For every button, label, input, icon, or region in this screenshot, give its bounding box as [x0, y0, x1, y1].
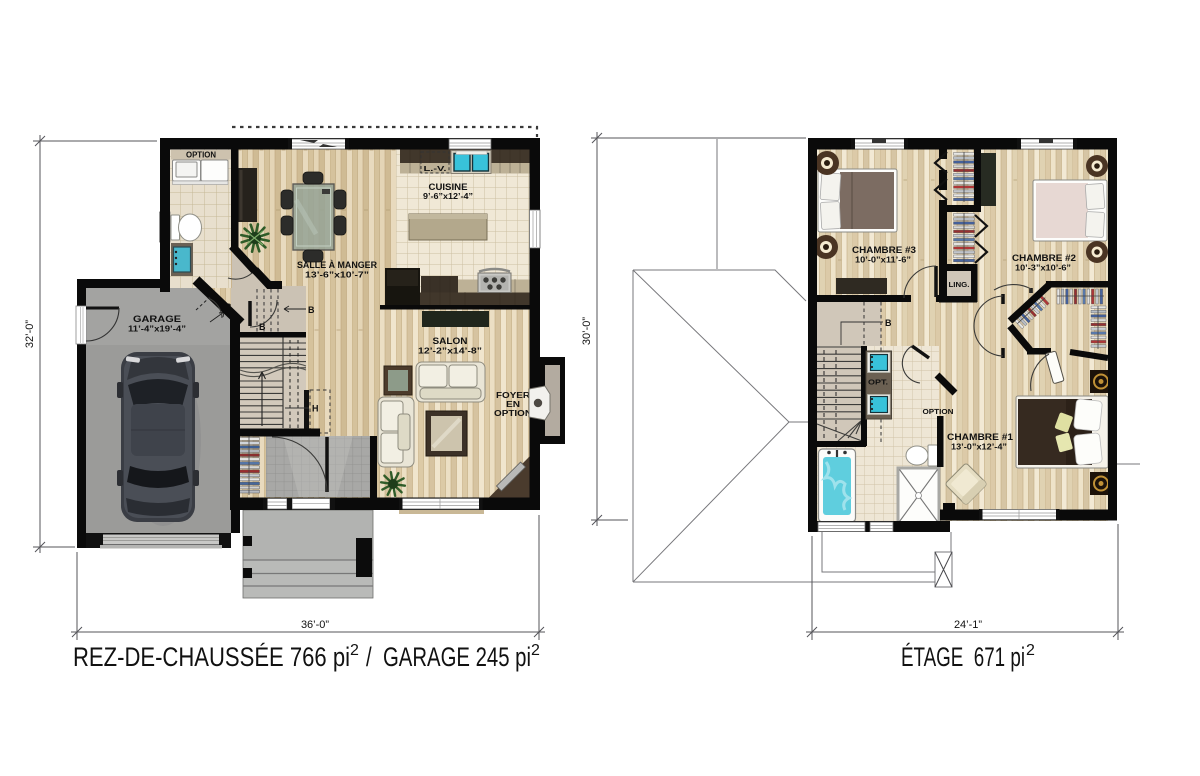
svg-text:10’-0”x11’-6”: 10’-0”x11’-6”	[855, 255, 911, 265]
svg-text:12’-2”x14’-8”: 12’-2”x14’-8”	[418, 346, 482, 356]
svg-text:B: B	[308, 305, 315, 315]
svg-text:2: 2	[350, 642, 359, 659]
svg-text:2: 2	[531, 642, 540, 659]
svg-text:CHAMBRE #1: CHAMBRE #1	[947, 432, 1013, 442]
svg-text:32’-0”: 32’-0”	[24, 320, 36, 348]
svg-text:B: B	[259, 322, 266, 332]
svg-text:H: H	[312, 404, 319, 414]
svg-text:REZ-DE-CHAUSSÉE 766 pi: REZ-DE-CHAUSSÉE 766 pi	[73, 642, 350, 672]
svg-text:24’-1”: 24’-1”	[954, 619, 982, 631]
svg-text:36’-0”: 36’-0”	[301, 619, 329, 631]
svg-text:LING.: LING.	[949, 280, 970, 289]
svg-text:CHAMBRE #2: CHAMBRE #2	[1012, 253, 1076, 263]
svg-text:13’-0”x12’-4”: 13’-0”x12’-4”	[951, 442, 1007, 452]
svg-text:11’-4”x19’-4”: 11’-4”x19’-4”	[128, 324, 186, 334]
svg-text:10’-3”x10’-6”: 10’-3”x10’-6”	[1015, 263, 1071, 273]
svg-text:9’-6”x12’-4”: 9’-6”x12’-4”	[423, 191, 473, 201]
svg-text:B: B	[885, 318, 892, 328]
svg-text:30’-0”: 30’-0”	[581, 317, 593, 345]
svg-text:2: 2	[1026, 642, 1035, 659]
svg-text:OPTION: OPTION	[923, 407, 954, 416]
svg-text:L.-V.: L.-V.	[424, 164, 447, 173]
svg-text:CHAMBRE #3: CHAMBRE #3	[852, 245, 916, 255]
svg-text:OPT.: OPT.	[868, 380, 888, 387]
svg-text:/ GARAGE 245 pi: / GARAGE 245 pi	[366, 642, 531, 672]
svg-text:13’-6”x10’-7”: 13’-6”x10’-7”	[305, 270, 369, 280]
svg-text:EN: EN	[506, 400, 520, 409]
svg-text:FOYER: FOYER	[496, 391, 530, 400]
svg-text:ÉTAGE 671 pi: ÉTAGE 671 pi	[901, 642, 1025, 672]
svg-text:OPTION: OPTION	[186, 151, 216, 160]
svg-text:OPTION: OPTION	[494, 409, 532, 418]
